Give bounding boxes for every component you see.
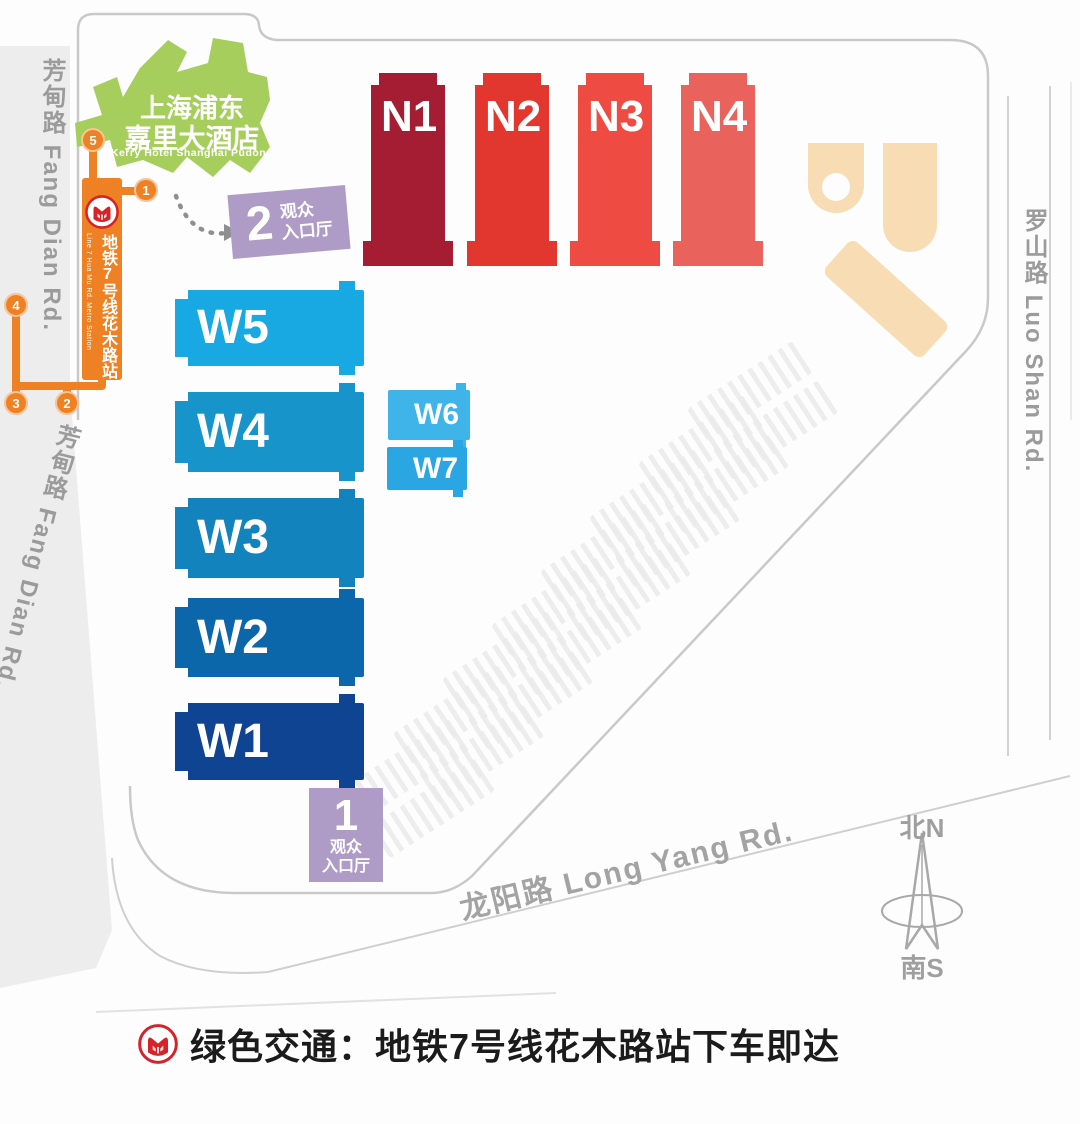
hall-label-N4: N4 <box>691 95 747 139</box>
hall-tab <box>339 675 355 686</box>
hall-label-W6: W6 <box>414 400 459 430</box>
compass-south-label: 南S <box>900 948 943 985</box>
entrance-1-label-line2: 入口厅 <box>322 857 370 876</box>
building-shape-2 <box>883 143 937 252</box>
hall-notch <box>174 771 188 781</box>
hall-notch <box>174 497 188 507</box>
entrance-2-label-line2: 入口厅 <box>281 218 334 244</box>
legend-text: 绿色交通：地铁7号线花木路站下车即达 <box>190 1018 840 1070</box>
entrance-1-label-line1: 观众 <box>330 838 362 857</box>
hall-roof-tab <box>483 73 541 87</box>
hall-foot-flange <box>673 241 763 266</box>
entrance-badge-1: 1 观众 入口厅 <box>309 788 383 882</box>
hall-tab <box>339 489 355 500</box>
hall-notch <box>174 569 188 579</box>
hall-tab <box>456 383 466 392</box>
entrance-2-number: 2 <box>244 199 275 249</box>
hall-W2: W2 <box>175 598 364 677</box>
hall-notch <box>174 597 188 607</box>
hall-label-W3: W3 <box>197 514 269 562</box>
hall-W3: W3 <box>175 498 364 578</box>
hall-W7: W7 <box>387 447 467 490</box>
hall-tab <box>339 576 355 587</box>
hall-notch <box>174 668 188 678</box>
hall-W1: W1 <box>175 703 364 780</box>
hall-foot-flange <box>467 241 557 266</box>
expo-map: 芳甸路 Fang Dian Rd. 芳甸路 Fang Dian Rd. 罗山路 … <box>0 0 1080 1124</box>
hall-roof-tab <box>586 73 644 87</box>
entrance-1-number: 1 <box>334 794 358 838</box>
hall-label-W1: W1 <box>197 718 269 766</box>
hall-tab <box>339 694 355 705</box>
hall-label-N2: N2 <box>485 95 541 139</box>
hall-notch <box>174 463 188 473</box>
shanghai-metro-logo-icon <box>138 1024 178 1064</box>
compass-north-label: 北N <box>900 808 945 845</box>
hall-label-W7: W7 <box>413 454 458 484</box>
hall-W6: W6 <box>388 390 470 440</box>
metro-stop-2: 2 <box>55 391 79 415</box>
building-1-courtyard <box>822 173 850 201</box>
hall-tab <box>339 589 355 600</box>
legend: 绿色交通：地铁7号线花木路站下车即达 <box>138 1018 840 1070</box>
hall-tab <box>339 470 355 481</box>
hall-label-N3: N3 <box>588 95 644 139</box>
hall-tab <box>339 281 355 292</box>
hall-N3: N3 <box>578 85 652 243</box>
hall-tab <box>339 364 355 375</box>
hall-tab <box>453 440 463 449</box>
hall-roof-tab <box>689 73 747 87</box>
entrance-badge-2: 2 观众 入口厅 <box>227 185 350 259</box>
hall-foot-flange <box>570 241 660 266</box>
metro-stop-3: 3 <box>4 391 28 415</box>
lower-road-line <box>96 993 556 1012</box>
hall-N2: N2 <box>475 85 549 243</box>
hall-notch <box>174 702 188 712</box>
hall-label-W2: W2 <box>197 614 269 662</box>
hall-tab <box>339 383 355 394</box>
hall-N4: N4 <box>681 85 755 243</box>
road-label-luo-shan: 罗山路 Luo Shan Rd. <box>1016 208 1051 578</box>
hall-tab <box>453 488 463 497</box>
